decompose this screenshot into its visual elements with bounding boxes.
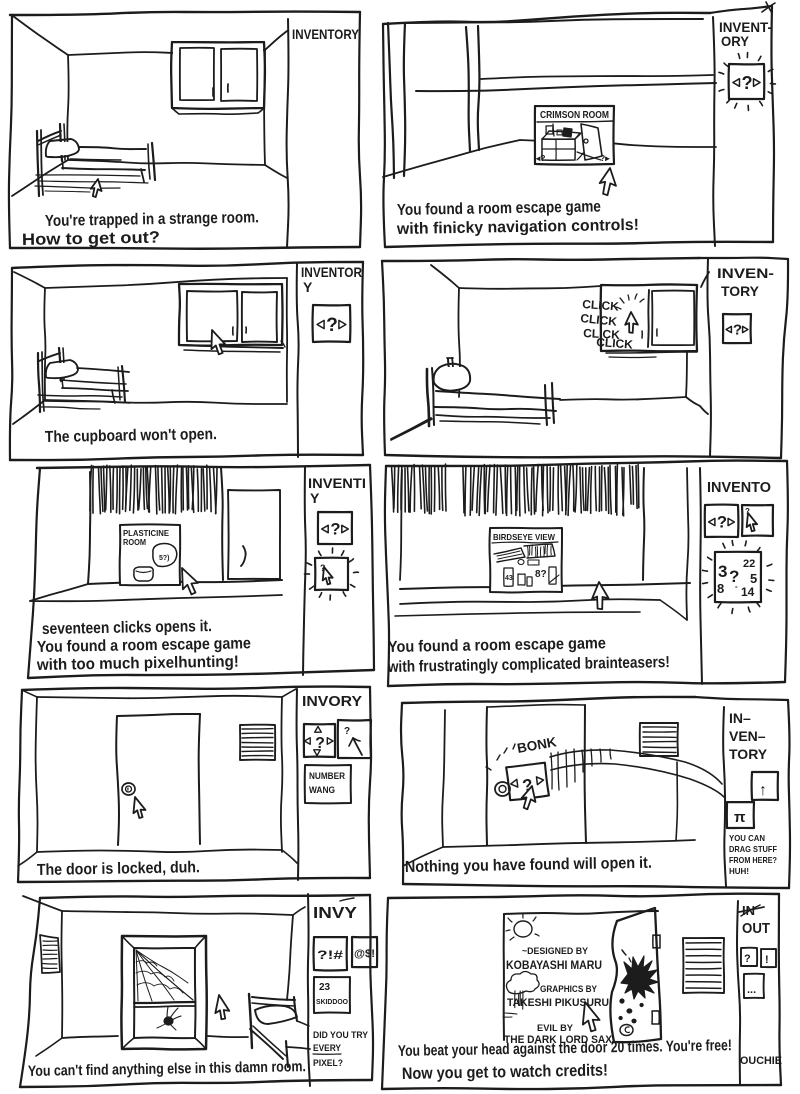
svg-text:OUT: OUT: [742, 921, 770, 937]
svg-text:SKIDDOO: SKIDDOO: [316, 997, 348, 1006]
svg-text:DID YOU TRY: DID YOU TRY: [313, 1030, 368, 1040]
svg-text:INVY: INVY: [313, 905, 357, 922]
svg-text:INVEN-: INVEN-: [717, 265, 774, 281]
svg-text:?: ?: [717, 513, 727, 532]
svg-text:INVENTOR: INVENTOR: [301, 264, 362, 280]
svg-text:Now you get to watch credits!: Now you get to watch credits!: [402, 1061, 608, 1083]
svg-text:FROM HERE?: FROM HERE?: [729, 855, 777, 865]
svg-text:KOBAYASHI MARU: KOBAYASHI MARU: [506, 960, 602, 972]
svg-text:EVERY: EVERY: [313, 1043, 341, 1053]
svg-text:NUMBER: NUMBER: [309, 771, 345, 781]
svg-text:-: -: [735, 582, 738, 591]
svg-text:TORY: TORY: [729, 746, 768, 762]
svg-text:?: ?: [741, 73, 752, 93]
svg-text:?: ?: [344, 726, 350, 737]
svg-text:INVENTI: INVENTI: [308, 475, 366, 491]
svg-text:TORY: TORY: [721, 283, 760, 299]
svg-text:!: !: [765, 954, 769, 966]
svg-text:OUCHIE: OUCHIE: [740, 1055, 782, 1067]
svg-text:PIXEL?: PIXEL?: [313, 1058, 343, 1068]
svg-text:?!#: ?!#: [317, 948, 343, 962]
svg-text:43: 43: [505, 575, 513, 582]
svg-text:23: 23: [319, 982, 331, 993]
svg-text:5?): 5?): [159, 555, 170, 562]
svg-text:?: ?: [744, 953, 751, 965]
svg-text:?▸: ?▸: [600, 153, 610, 163]
svg-text:PLASTICINE: PLASTICINE: [123, 529, 170, 538]
svg-text:CRIMSON ROOM: CRIMSON ROOM: [540, 109, 609, 121]
svg-text:VEN–: VEN–: [729, 728, 766, 744]
svg-text:◂?: ◂?: [535, 153, 545, 163]
svg-text:ORY: ORY: [721, 33, 750, 49]
svg-text:INVENTORY: INVENTORY: [292, 26, 360, 42]
svg-text:with too much pixelhunting!: with too much pixelhunting!: [36, 653, 239, 674]
svg-text:GRAPHICS BY: GRAPHICS BY: [540, 984, 597, 994]
svg-text:INVENTO: INVENTO: [707, 480, 771, 496]
svg-text:3: 3: [718, 562, 727, 581]
svg-text:Y: Y: [303, 279, 313, 295]
svg-text:π: π: [734, 809, 746, 826]
svg-text:IN–: IN–: [729, 710, 751, 726]
svg-text:The door is locked, duh.: The door is locked, duh.: [37, 859, 200, 879]
svg-text:?: ?: [326, 315, 338, 336]
svg-text:You found a room escape game: You found a room escape game: [397, 198, 601, 219]
svg-text:?: ?: [330, 520, 340, 539]
svg-text:HUH!: HUH!: [729, 866, 749, 876]
svg-text:INVORY: INVORY: [302, 694, 362, 710]
svg-text:22: 22: [743, 558, 755, 570]
svg-text:5: 5: [750, 571, 757, 586]
svg-text:Y: Y: [310, 490, 320, 506]
svg-text:14: 14: [741, 585, 755, 599]
svg-text:CLICK: CLICK: [596, 335, 634, 352]
svg-text:ROOM: ROOM: [123, 538, 146, 547]
svg-text:8?: 8?: [535, 569, 547, 580]
svg-text:How to get out?: How to get out?: [22, 229, 160, 249]
svg-text:EVIL BY: EVIL BY: [537, 1023, 573, 1033]
svg-text:BIRDSEYE VIEW: BIRDSEYE VIEW: [493, 532, 556, 542]
svg-text:↑: ↑: [759, 782, 767, 799]
svg-text:@$!: @$!: [354, 948, 375, 960]
svg-text:~DESIGNED BY: ~DESIGNED BY: [522, 946, 588, 956]
svg-text:DRAG STUFF: DRAG STUFF: [729, 844, 777, 854]
svg-text:8: 8: [717, 581, 724, 596]
svg-text:?: ?: [733, 322, 742, 339]
svg-text:WANG: WANG: [309, 785, 335, 795]
svg-text:YOU CAN: YOU CAN: [729, 833, 765, 843]
svg-text:...: ...: [747, 984, 756, 996]
svg-text:seventeen clicks opens it.: seventeen clicks opens it.: [42, 618, 212, 638]
svg-text:The cupboard won't open.: The cupboard won't open.: [45, 426, 217, 446]
